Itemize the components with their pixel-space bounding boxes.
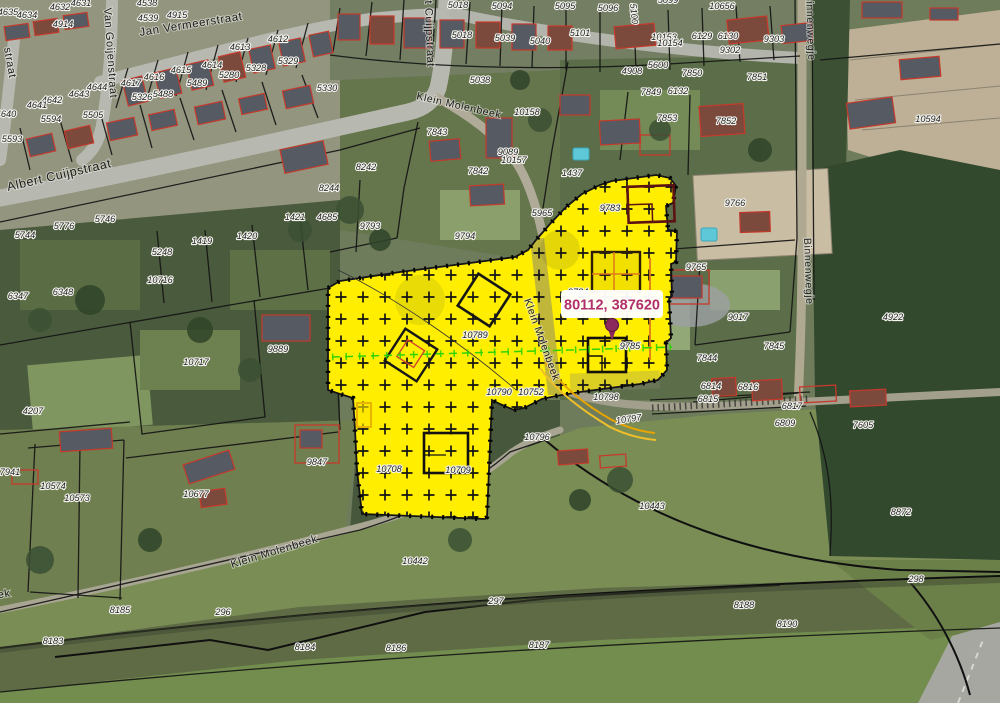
parcel-label: 8183	[43, 636, 64, 646]
parcel-label: 5095	[555, 1, 576, 11]
parcel-label: 5329	[278, 56, 298, 66]
parcel-label: 10789	[462, 330, 488, 340]
parcel-label: 10573	[64, 493, 90, 503]
parcel-label: 5101	[570, 28, 590, 38]
parcel-label: 7605	[853, 420, 874, 430]
parcel-label: 5965	[532, 208, 553, 218]
parcel-label: 6814	[701, 381, 721, 391]
parcel-label: 7850	[682, 68, 703, 78]
coordinate-readout-text: 80112, 387620	[564, 298, 660, 314]
parcel-label: 5328	[246, 63, 267, 73]
parcel-label: 10796	[524, 432, 550, 442]
parcel-label: 8872	[891, 507, 911, 517]
parcel-label: 10717	[183, 357, 209, 367]
parcel-label: 10752	[518, 387, 544, 397]
parcel-label: 4207	[23, 406, 44, 416]
parcel-label: 8187	[529, 640, 550, 650]
parcel-label: 7853	[657, 113, 678, 123]
parcel-label: 5746	[95, 214, 116, 224]
parcel-label: 8184	[295, 642, 315, 652]
parcel-label: 10790	[486, 387, 512, 397]
parcel-label: 5326	[132, 92, 153, 102]
parcel-label: 10708	[376, 464, 402, 474]
map-viewport[interactable]: Jan VermeerstraatVan GoijenstraatstraatA…	[0, 0, 1000, 703]
parcel-label: 6130	[718, 31, 739, 41]
parcel-label: 7845	[764, 341, 785, 351]
parcel-label: 5038	[470, 75, 491, 85]
parcel-label: 9847	[307, 457, 328, 467]
parcel-label: 9889	[268, 344, 288, 354]
parcel-label: 10709	[445, 465, 471, 475]
parcel-label: 5776	[54, 221, 75, 231]
parcel-label: 4914	[53, 19, 73, 29]
parcel-label: 5280	[219, 70, 240, 80]
parcel-label: 8244	[319, 183, 339, 193]
parcel-label: 7852	[716, 116, 736, 126]
parcel-label: 8190	[777, 619, 798, 629]
parcel-label: 5018	[448, 0, 469, 10]
parcel-label: 5488	[153, 89, 174, 99]
parcel-label: 4641	[27, 100, 47, 110]
street-label: Binnenwegje	[803, 0, 817, 61]
parcel-label: 6347	[8, 291, 29, 301]
parcel-label: 9783	[600, 203, 621, 213]
parcel-label: 296	[214, 607, 231, 617]
parcel-label: 4614	[202, 60, 222, 70]
map-canvas[interactable]: Jan VermeerstraatVan GoijenstraatstraatA…	[0, 0, 1000, 703]
parcel-label: 4915	[167, 10, 188, 20]
parcel-label: 6348	[53, 287, 74, 297]
parcel-label: 5248	[152, 247, 173, 257]
parcel-label: 9017	[728, 312, 749, 322]
parcel-label: 4616	[144, 72, 165, 82]
parcel-label: 9794	[455, 231, 475, 241]
parcel-label: 4612	[268, 34, 288, 44]
parcel-label: 4643	[69, 89, 90, 99]
parcel-label: 10594	[915, 114, 941, 124]
parcel-label: 5505	[83, 110, 104, 120]
parcel-label: 10158	[514, 107, 540, 117]
parcel-label: 5489	[187, 78, 207, 88]
parcel-label: 10677	[183, 489, 209, 499]
parcel-label: 6129	[692, 31, 712, 41]
parcel-label: 4685	[317, 212, 338, 222]
parcel-label: 4617	[121, 78, 142, 88]
parcel-label: 5594	[41, 114, 61, 124]
parcel-label: 4908	[622, 66, 643, 76]
parcel-label: 6815	[698, 394, 719, 404]
parcel-label: 6817	[782, 401, 803, 411]
parcel-label: 7849	[641, 87, 661, 97]
parcel-label: 4922	[883, 312, 903, 322]
parcel-label: 9303	[764, 34, 785, 44]
parcel-label: 9765	[686, 262, 707, 272]
parcel-label: 4538	[137, 0, 158, 8]
parcel-label: 5600	[648, 60, 669, 70]
parcel-label: 4644	[87, 82, 107, 92]
parcel-label: 297	[487, 596, 504, 606]
street-label: Binnenwegje	[801, 238, 815, 305]
parcel-label: 10443	[639, 501, 665, 511]
parcel-label: 10157	[501, 155, 527, 165]
parcel-label: 8242	[356, 162, 376, 172]
parcel-label: 7941	[0, 467, 20, 477]
parcel-label: 5039	[495, 33, 515, 43]
parcel-label: 10798	[593, 392, 619, 402]
parcel-label: 5744	[15, 230, 35, 240]
parcel-label: 6816	[738, 382, 759, 392]
parcel-label: 8188	[734, 600, 755, 610]
parcel-label: 4632	[50, 2, 70, 12]
parcel-label: 10716	[147, 275, 173, 285]
parcel-label: 1421	[285, 212, 305, 222]
parcel-label: 1419	[192, 236, 212, 246]
parcel-label: 9302	[720, 45, 740, 55]
parcel-label: 10442	[402, 556, 428, 566]
parcel-label: 298	[907, 574, 924, 584]
parcel-label: 5040	[530, 36, 551, 46]
parcel-label: 10154	[657, 38, 683, 48]
parcel-label: 5593	[2, 134, 23, 144]
parcel-label: 7844	[697, 353, 717, 363]
parcel-label: 8185	[110, 605, 131, 615]
parcel-label: 10574	[40, 481, 66, 491]
parcel-label: 5018	[452, 30, 473, 40]
parcel-label: 4631	[71, 0, 91, 8]
parcel-label: 4613	[230, 42, 251, 52]
parcel-label: 7851	[747, 72, 767, 82]
parcel-label: 1420	[237, 231, 258, 241]
parcel-label: 6809	[775, 418, 795, 428]
parcel-label: 7842	[468, 166, 488, 176]
parcel-label: 8186	[386, 643, 407, 653]
parcel-label: 5099	[658, 0, 678, 5]
parcel-label: 1437	[562, 168, 583, 178]
parcel-label: 7843	[427, 127, 448, 137]
parcel-label: 5330	[317, 83, 338, 93]
parcel-label: 4615	[171, 65, 192, 75]
parcel-label: 10656	[709, 1, 735, 11]
parcel-label: 4640	[0, 109, 17, 119]
parcel-label: 9793	[360, 221, 381, 231]
parcel-label: 9766	[725, 198, 746, 208]
parcel-label: 4634	[17, 10, 37, 20]
parcel-label: 5096	[598, 3, 619, 13]
parcel-label: 6132	[668, 86, 688, 96]
parcel-label: 4539	[138, 13, 158, 23]
parcel-label: 9785	[620, 341, 641, 351]
coordinate-readout: 80112, 387620	[561, 290, 663, 318]
parcel-label: 5094	[492, 1, 512, 11]
parcel-label: 5100	[628, 3, 640, 25]
